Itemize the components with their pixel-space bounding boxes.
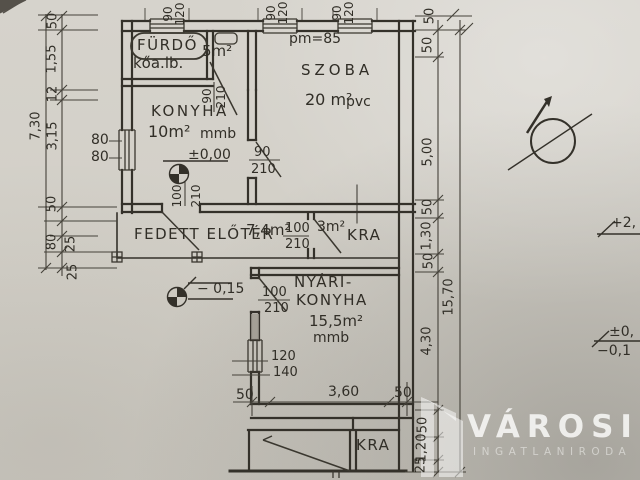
dim-left-8: 25 bbox=[67, 264, 80, 281]
dim-left-6: 80 bbox=[46, 234, 59, 251]
nyari-window-width: 120 bbox=[271, 350, 296, 363]
hall-door-height: 210 bbox=[215, 86, 227, 109]
dim-right-4: 50 bbox=[423, 253, 436, 270]
edge-level-2: ±0, bbox=[609, 325, 634, 339]
room-nyari-label-2: KONYHA bbox=[296, 293, 368, 308]
dim-right-2: 50 bbox=[422, 199, 435, 216]
dim-left-5: 50 bbox=[46, 196, 59, 213]
dim-left-2: 12 bbox=[47, 86, 60, 103]
room-nyari-area: 15,5m² bbox=[309, 314, 363, 329]
window-symbols bbox=[119, 19, 372, 478]
room-nyari-label-1: NYÁRI- bbox=[294, 275, 353, 290]
dim-right-6: 4,30 bbox=[421, 327, 434, 356]
dim-right-3: 1,30 bbox=[421, 222, 434, 251]
dim-right-total: 15,70 bbox=[443, 278, 456, 315]
nyari-door-height: 210 bbox=[264, 302, 289, 315]
top-window3-height: 120 bbox=[343, 2, 355, 25]
room-kamra-label: KRA bbox=[347, 228, 381, 243]
nyari-window-height: 140 bbox=[273, 366, 298, 379]
dim-right-0: 50 bbox=[422, 37, 435, 54]
room-eloter-area: 7,4m² bbox=[246, 223, 290, 238]
dim-bottom-0: 50 bbox=[236, 388, 254, 402]
room-szoba-label: SZOBA bbox=[301, 63, 373, 78]
konyha-window-height: 80 bbox=[91, 150, 109, 164]
top-window1-height: 120 bbox=[174, 3, 186, 26]
room-kamra-area: 3m² bbox=[317, 220, 345, 234]
edge-level-1: +2, bbox=[611, 216, 636, 230]
dim-top-50: 50 bbox=[424, 8, 437, 25]
level-minus15-label: − 0,15 bbox=[197, 282, 244, 296]
walls bbox=[117, 21, 415, 471]
level-zero-label: ±0,00 bbox=[188, 148, 231, 162]
porch-kamra-door-width: 100 bbox=[285, 222, 310, 235]
porch-posts bbox=[112, 252, 202, 262]
north-arrow-icon bbox=[508, 96, 592, 170]
room-szoba-pm: pm=85 bbox=[289, 32, 341, 46]
dim-right-9: 25 bbox=[415, 457, 428, 474]
konyha-window-width: 80 bbox=[91, 133, 109, 147]
dim-bottom-2: 50 bbox=[394, 386, 412, 400]
kitchen-porch-door-height: 210 bbox=[190, 185, 202, 208]
room-kra2-label: KRA bbox=[356, 438, 390, 453]
watermark-subtitle: INGATLANIRODA bbox=[473, 446, 631, 458]
dim-bottom-1: 3,60 bbox=[328, 385, 359, 399]
dim-right-1: 5,00 bbox=[422, 138, 435, 167]
room-furdo-note: kőa.lb. bbox=[133, 56, 183, 71]
dim-left-1: 1,55 bbox=[46, 45, 59, 74]
hall-door-width: 90 bbox=[201, 88, 213, 103]
konyha-door-width: 90 bbox=[254, 146, 271, 159]
watermark-title: VÁROSI bbox=[467, 409, 639, 445]
dim-left-0: 50 bbox=[47, 13, 60, 30]
room-furdo-label: FÜRDŐ bbox=[137, 38, 198, 53]
room-konyha-floor: mmb bbox=[200, 127, 236, 141]
page-corner-mark bbox=[0, 0, 26, 13]
porch-kamra-door-height: 210 bbox=[285, 238, 310, 251]
dim-right-7: 50 bbox=[417, 417, 430, 434]
room-konyha-area: 10m² bbox=[148, 124, 190, 140]
scanned-floorplan-page: FÜRDŐ kőa.lb. 5m² KONYHA 10m² mmb pm=85 … bbox=[0, 0, 640, 480]
edge-level-3: −0,1 bbox=[597, 344, 631, 358]
nyari-door-width: 100 bbox=[262, 286, 287, 299]
room-nyari-floor: mmb bbox=[313, 331, 349, 345]
dim-left-total: 7,30 bbox=[30, 112, 43, 141]
top-window2-height: 120 bbox=[277, 2, 289, 25]
masonry-shaded-wall bbox=[251, 314, 259, 340]
room-szoba-floor: pvc bbox=[346, 95, 371, 109]
level-marker-zero bbox=[163, 161, 228, 184]
dim-left-3: 3,15 bbox=[47, 122, 60, 151]
kitchen-porch-door-width: 100 bbox=[171, 185, 183, 208]
dim-left-7: 25 bbox=[65, 236, 78, 253]
room-hall-area: 5m² bbox=[202, 44, 232, 59]
konyha-door-height: 210 bbox=[251, 163, 276, 176]
